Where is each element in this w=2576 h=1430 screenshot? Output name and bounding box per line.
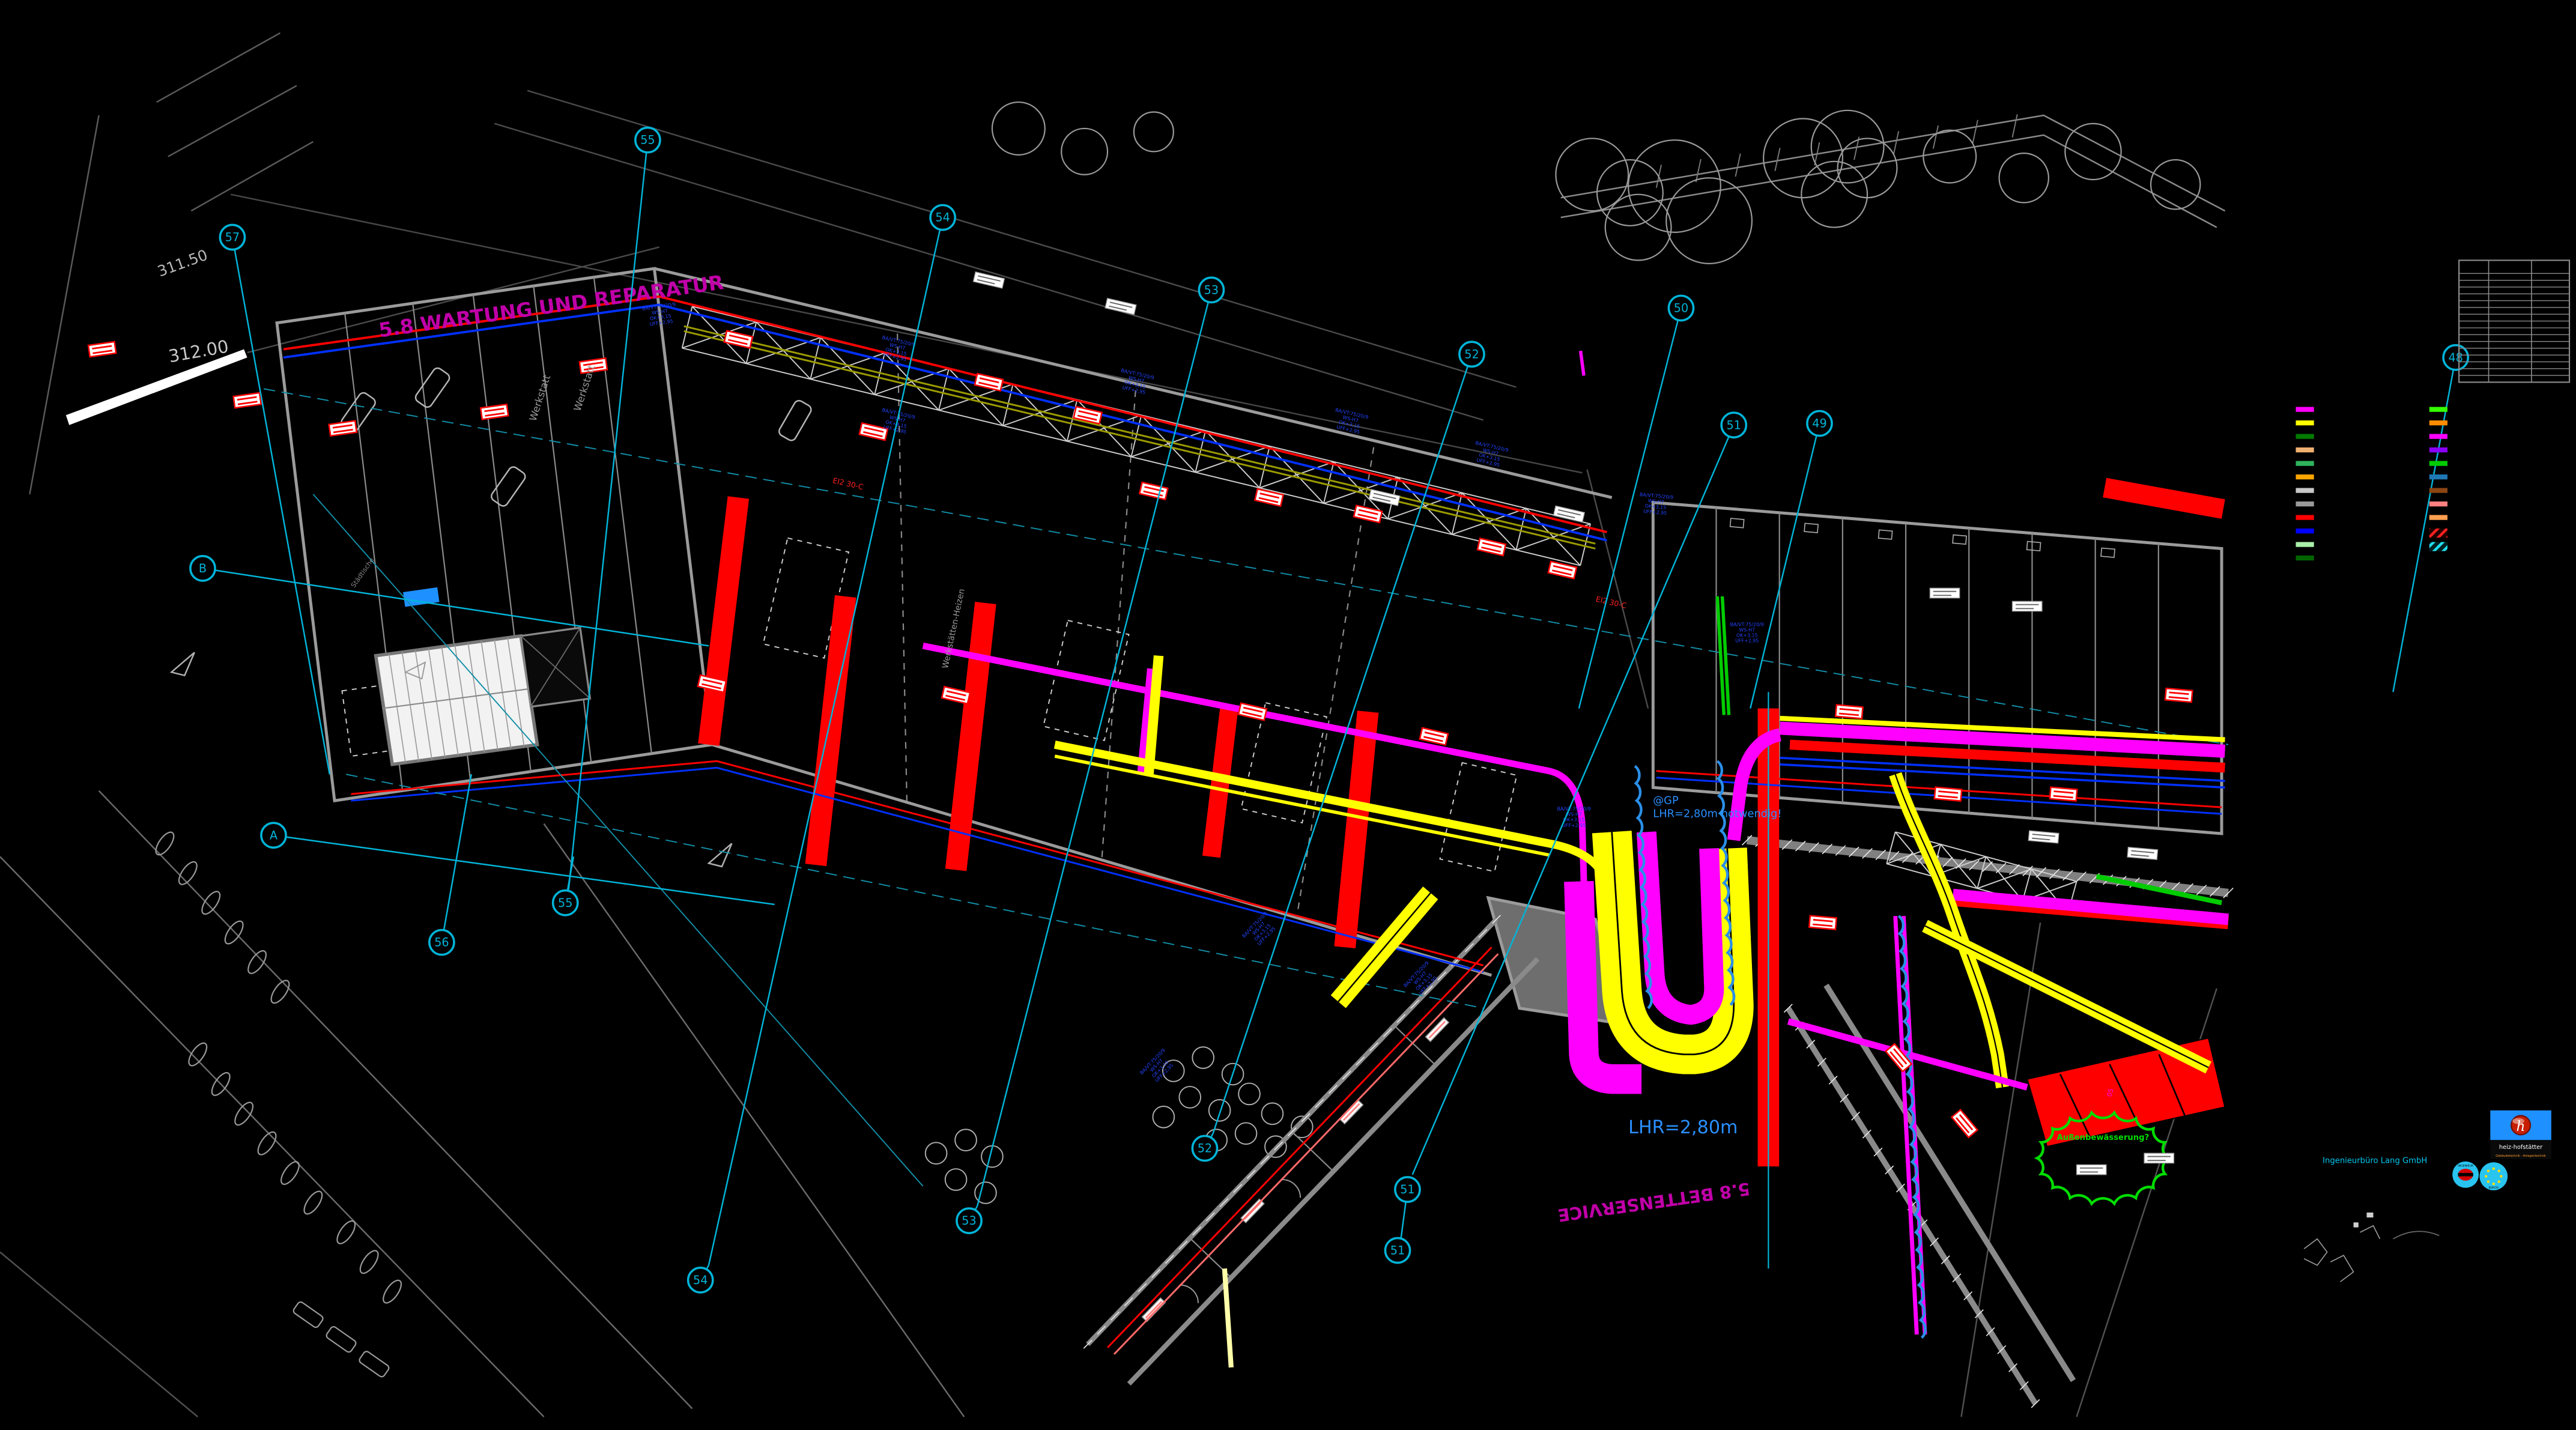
legend-swatch bbox=[2296, 407, 2314, 412]
grid-bubble-label: 51 bbox=[1400, 1183, 1414, 1196]
note-lhr: LHR=2,80m bbox=[1628, 1117, 1738, 1138]
grid-line bbox=[977, 290, 1211, 1206]
radiator-tag bbox=[1074, 407, 1102, 424]
svg-text:BA/VT:75/20/9: BA/VT:75/20/9 bbox=[1730, 622, 1764, 627]
legend-swatch bbox=[2296, 529, 2314, 533]
schedule-table bbox=[2459, 260, 2569, 382]
tree-small bbox=[1179, 1086, 1201, 1108]
bush bbox=[232, 1100, 256, 1128]
key-plan-sketch bbox=[2304, 1213, 2439, 1282]
tree-small bbox=[1238, 1083, 1260, 1105]
radiator-tag bbox=[2165, 688, 2192, 702]
cad-floorplan-canvas: BA/VT:75/20/9WS-H7OK+3,15UFF+2,95BA/VT:7… bbox=[0, 0, 2576, 1430]
svg-text:WS-H7: WS-H7 bbox=[1739, 627, 1755, 632]
grid-line bbox=[274, 835, 775, 904]
tree-small bbox=[926, 1142, 947, 1164]
radiator-tag bbox=[1835, 705, 1862, 719]
radiator bbox=[1142, 1298, 1165, 1321]
fire-rating-2: EI2 30-C bbox=[1595, 595, 1628, 610]
pipe-label: BA/VT:75/20/9WS-H7OK+3,15UFF+2,95 bbox=[1117, 368, 1154, 396]
workshop-cars bbox=[339, 366, 813, 508]
legend-swatch-hatched bbox=[2429, 542, 2447, 551]
room-label-bettenservice: 5.8 BETTENSERVICE bbox=[1556, 1178, 1751, 1226]
grid-bubble-label: 53 bbox=[1204, 283, 1219, 297]
grid-line bbox=[1750, 423, 1819, 709]
title-block: h heiz-hofstätter Gebäudetechnik - Anlag… bbox=[2304, 1110, 2551, 1282]
logo-monogram: h bbox=[2517, 1118, 2526, 1135]
legend-swatch bbox=[2296, 420, 2314, 425]
grid-bubble-label: 57 bbox=[225, 231, 240, 244]
svg-text:UFF+2,95: UFF+2,95 bbox=[1562, 823, 1586, 828]
legend-swatch bbox=[2296, 542, 2314, 547]
pipe-label: BA/VT:75/20/9WS-H7OK+3,15UFF+2,95 bbox=[642, 301, 679, 328]
grid-bubble-label: 54 bbox=[935, 211, 950, 225]
svg-text:UFF+2,95: UFF+2,95 bbox=[1643, 509, 1667, 516]
building-outline bbox=[277, 268, 2233, 1408]
road-arrow bbox=[709, 843, 732, 866]
legend-swatch-hatched bbox=[2429, 529, 2447, 538]
grid-bubble-label: 55 bbox=[558, 896, 572, 910]
room-label-werkstatt-2: Werkstatt bbox=[572, 363, 598, 413]
legend bbox=[2296, 407, 2447, 561]
tree bbox=[1556, 138, 1628, 211]
radiator-tag bbox=[234, 393, 261, 408]
grid-line bbox=[441, 774, 471, 942]
radiator-tag bbox=[1951, 1110, 1977, 1138]
legend-swatch bbox=[2429, 420, 2447, 425]
radiator-tag bbox=[975, 374, 1003, 391]
tree-small bbox=[945, 1169, 967, 1190]
legend-swatch bbox=[2296, 434, 2314, 439]
svg-text:OK+3,15: OK+3,15 bbox=[1563, 817, 1585, 823]
bush bbox=[301, 1189, 326, 1217]
tree bbox=[1666, 178, 1752, 264]
tree-small bbox=[1262, 1103, 1283, 1124]
legend-swatch bbox=[2296, 556, 2314, 560]
legend-swatch bbox=[2296, 461, 2314, 466]
red-panel bbox=[816, 596, 845, 865]
tree bbox=[1628, 140, 1721, 232]
svg-text:UFF+2,95: UFF+2,95 bbox=[1735, 638, 1759, 644]
radiator-tag bbox=[1139, 482, 1168, 500]
note-irrigation: Außenbewässerung? bbox=[2057, 1133, 2150, 1142]
pipe-label: BA/VT:75/20/9WS-H7OK+3,15UFF+2,95 bbox=[1402, 960, 1441, 1000]
bush bbox=[255, 1129, 279, 1157]
tree bbox=[992, 102, 1045, 155]
tree bbox=[1061, 129, 1108, 175]
info-tag bbox=[1930, 588, 1959, 598]
info-tag bbox=[2077, 1165, 2106, 1174]
bush bbox=[153, 829, 177, 858]
grid-bubble-label: 54 bbox=[693, 1273, 708, 1287]
grid-bubble-label: B bbox=[199, 562, 207, 575]
tree bbox=[1923, 130, 1976, 183]
radiator-tag bbox=[329, 421, 357, 436]
grid-bubble-label: 48 bbox=[2448, 351, 2462, 365]
svg-text:BÜROS: BÜROS bbox=[2489, 1186, 2499, 1190]
legend-swatch bbox=[2429, 515, 2447, 520]
stairwell bbox=[376, 628, 590, 765]
legend-swatch bbox=[2429, 501, 2447, 506]
tree-small bbox=[1153, 1106, 1174, 1128]
bush bbox=[268, 978, 292, 1006]
grid-bubble-label: 51 bbox=[1390, 1244, 1405, 1258]
tree-small bbox=[1192, 1047, 1214, 1068]
logo-subtitle: Gebäudetechnik - Anlagentechnik bbox=[2496, 1154, 2546, 1158]
red-panel bbox=[956, 603, 986, 870]
radiator-tag bbox=[1477, 538, 1506, 556]
tree bbox=[1134, 112, 1174, 152]
grid-bubble-label: 53 bbox=[962, 1214, 976, 1228]
note-gp: @GP bbox=[1653, 795, 1679, 807]
legend-swatch bbox=[2429, 434, 2447, 439]
stamp-bueros-icon: BÜROS bbox=[2479, 1162, 2508, 1190]
fire-rating-1: EI2 30-C bbox=[832, 476, 864, 491]
legend-swatch bbox=[2296, 474, 2314, 479]
red-panel bbox=[2105, 488, 2223, 509]
grid-line bbox=[203, 568, 709, 646]
grid-bubble-label: A bbox=[270, 828, 277, 842]
road-arrow bbox=[171, 652, 194, 675]
bush bbox=[334, 1218, 359, 1246]
legend-swatch bbox=[2429, 407, 2447, 412]
radiator-tag bbox=[1935, 787, 1962, 801]
radiator-tag bbox=[1255, 489, 1283, 506]
bush bbox=[245, 948, 270, 976]
heating-pipes bbox=[264, 297, 2228, 1354]
svg-text:OK+3,15: OK+3,15 bbox=[1736, 632, 1758, 638]
radiator-tag bbox=[1420, 728, 1448, 745]
legend-swatch bbox=[2429, 461, 2447, 466]
tree-small bbox=[955, 1129, 977, 1151]
bush bbox=[186, 1040, 210, 1068]
grid-line bbox=[709, 217, 943, 1265]
svg-text:BA/VT:75/20/9: BA/VT:75/20/9 bbox=[1557, 807, 1590, 812]
level-label-311: 311.50 bbox=[155, 246, 210, 280]
legend-swatch bbox=[2296, 447, 2314, 452]
bush bbox=[380, 1277, 405, 1306]
legend-swatch bbox=[2296, 488, 2314, 493]
info-tag bbox=[2144, 1153, 2174, 1163]
bush bbox=[357, 1248, 381, 1276]
bush bbox=[199, 889, 223, 917]
stamp-ingenieur-icon: INGENIEUR bbox=[2452, 1162, 2479, 1188]
radiator-tag bbox=[2050, 787, 2077, 801]
info-tag bbox=[2127, 847, 2158, 860]
red-panel bbox=[709, 497, 738, 744]
info-tag bbox=[2028, 831, 2059, 843]
grid-bubble-label: 55 bbox=[640, 133, 655, 147]
svg-text:INGENIEUR: INGENIEUR bbox=[2458, 1165, 2474, 1168]
legend-swatch bbox=[2429, 447, 2447, 452]
road-marking-strip bbox=[66, 350, 247, 425]
grid-bubble-label: 50 bbox=[1674, 301, 1688, 315]
legend-swatch bbox=[2429, 488, 2447, 493]
red-panel bbox=[1345, 712, 1368, 947]
radiator bbox=[1426, 1018, 1449, 1041]
tree-small bbox=[1209, 1100, 1231, 1121]
legend-swatch bbox=[2296, 515, 2314, 520]
note-lhr-needed: LHR=2,80m notwendig! bbox=[1653, 808, 1781, 820]
grid-bubble-label: 49 bbox=[1812, 417, 1826, 431]
company-name: Ingenieurbüro Lang GmbH bbox=[2323, 1157, 2427, 1166]
radiator-tag bbox=[1809, 916, 1836, 930]
logo-brand: heiz-hofstätter bbox=[2499, 1144, 2543, 1151]
radiator-tag bbox=[1238, 703, 1267, 721]
radiator bbox=[1340, 1100, 1363, 1124]
tree-small bbox=[1235, 1122, 1257, 1144]
grid-bubble-label: 56 bbox=[434, 936, 449, 950]
legend-swatch bbox=[2296, 501, 2314, 506]
grid-bubble-label: 51 bbox=[1727, 418, 1741, 432]
info-tag bbox=[2013, 601, 2042, 611]
radiator-tag bbox=[88, 342, 116, 357]
grid-bubble-label: 52 bbox=[1464, 347, 1479, 361]
bush bbox=[277, 1159, 302, 1187]
radiator-tag bbox=[480, 404, 508, 419]
pipe-label: BA/VT:75/20/9WS-H7OK+3,15UFF+2,95 bbox=[1730, 622, 1764, 643]
grid-bubble-label: 52 bbox=[1198, 1142, 1212, 1156]
wing-bottom-inner bbox=[1129, 959, 1538, 1384]
tree bbox=[1999, 153, 2049, 202]
room-label-staedtische: Städtische bbox=[350, 556, 376, 589]
legend-swatch bbox=[2429, 474, 2447, 479]
